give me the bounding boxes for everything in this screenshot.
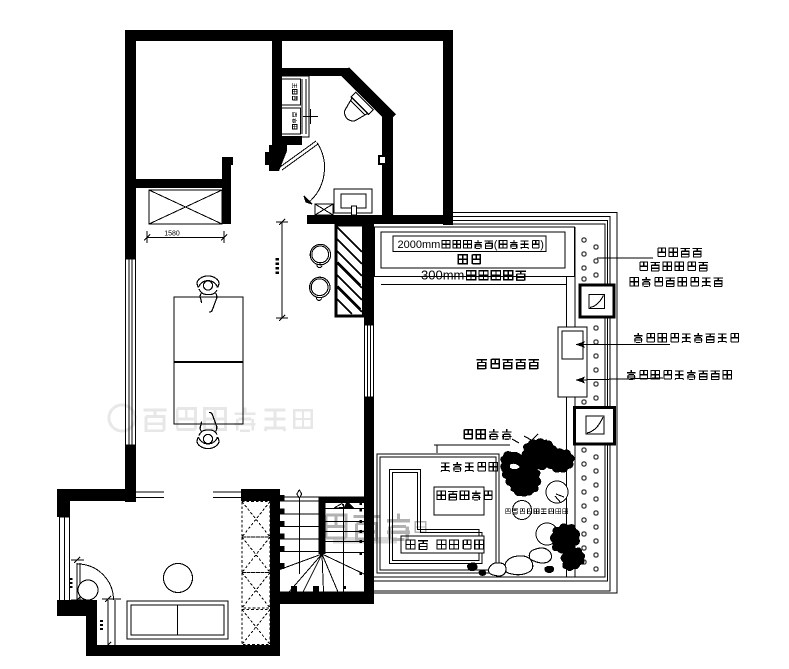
svg-text:): ) bbox=[540, 239, 544, 251]
svg-text:1580: 1580 bbox=[164, 231, 180, 238]
svg-text:300mm: 300mm bbox=[421, 268, 464, 283]
svg-text:(: ( bbox=[494, 239, 498, 251]
svg-text:2000mm: 2000mm bbox=[398, 239, 441, 251]
